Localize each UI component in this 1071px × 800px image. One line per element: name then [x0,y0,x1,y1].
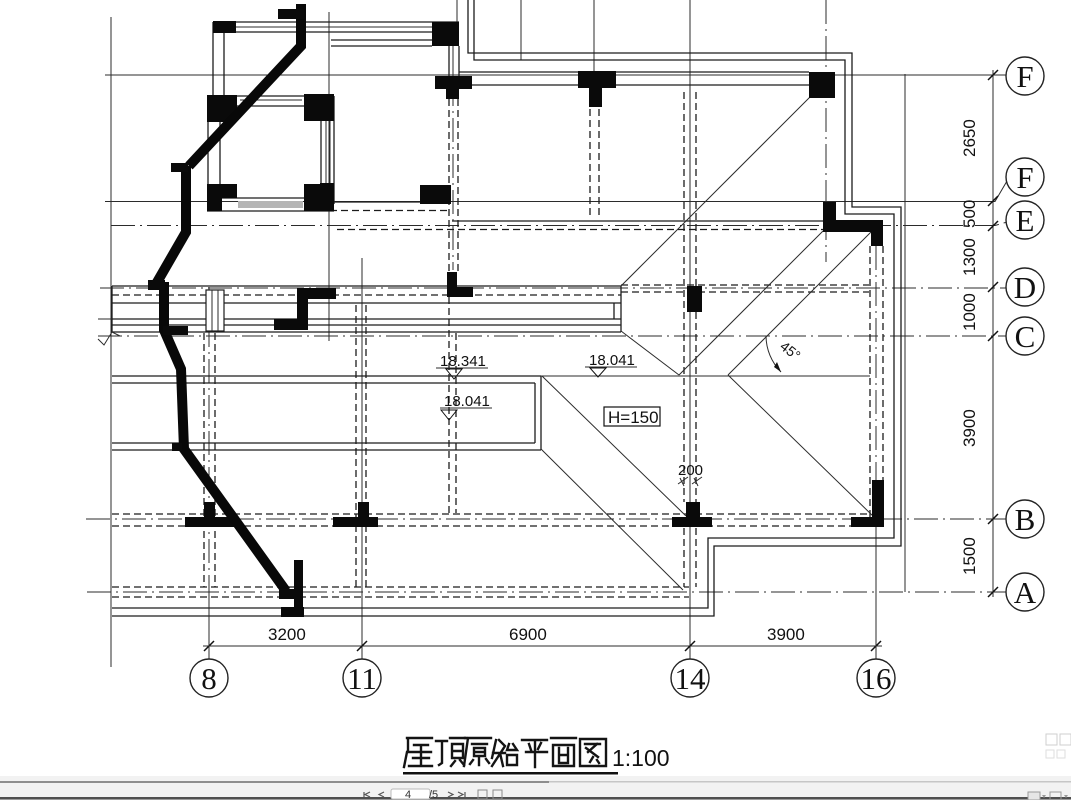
svg-text:18.041: 18.041 [589,352,635,369]
svg-text:8: 8 [201,661,217,696]
svg-text:11: 11 [347,661,377,696]
svg-text:F: F [1016,59,1033,94]
svg-text:/5: /5 [429,789,438,800]
svg-text:A: A [1014,575,1037,610]
svg-text:200: 200 [678,462,703,479]
svg-text:2650: 2650 [960,119,979,157]
svg-text:1500: 1500 [960,537,979,575]
svg-text:E: E [1016,203,1035,238]
svg-text:1300: 1300 [960,238,979,276]
svg-text:3900: 3900 [767,625,805,644]
svg-text:14: 14 [675,661,707,696]
svg-text:4: 4 [405,789,411,800]
svg-text:16: 16 [861,661,892,696]
svg-text:18.041: 18.041 [444,393,490,410]
svg-text:C: C [1015,319,1036,354]
svg-text:D: D [1014,270,1036,305]
svg-text:3200: 3200 [268,625,306,644]
svg-text:1:100: 1:100 [612,745,670,771]
svg-text:3900: 3900 [960,409,979,447]
svg-text:H=150: H=150 [608,408,659,427]
svg-text:500: 500 [960,200,979,228]
svg-text:1000: 1000 [960,293,979,331]
svg-text:B: B [1015,502,1036,537]
svg-text:6900: 6900 [509,625,547,644]
svg-text:18.341: 18.341 [440,353,486,370]
svg-text:F: F [1016,160,1033,195]
